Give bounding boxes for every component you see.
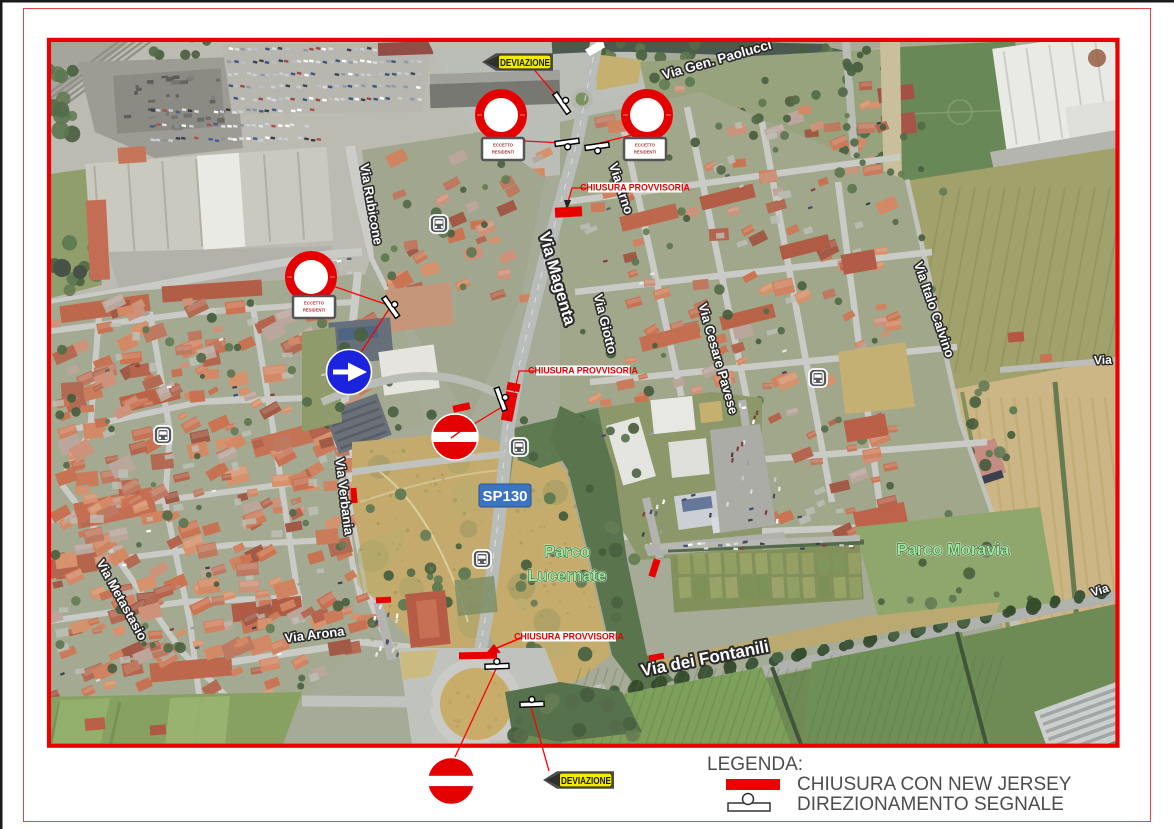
svg-text:Lucernate: Lucernate: [528, 567, 607, 585]
svg-text:RESIDENTI: RESIDENTI: [492, 150, 514, 155]
svg-text:DEVIAZIONE: DEVIAZIONE: [500, 57, 550, 69]
svg-text:SP130: SP130: [482, 488, 527, 505]
svg-text:Parco: Parco: [544, 543, 590, 561]
svg-text:ECCETTO: ECCETTO: [304, 301, 325, 306]
svg-text:CHIUSURA PROVVISORIA: CHIUSURA PROVVISORIA: [580, 183, 690, 193]
svg-text:CHIUSURA PROVVISORIA: CHIUSURA PROVVISORIA: [528, 366, 638, 376]
svg-text:DEVIAZIONE: DEVIAZIONE: [561, 775, 611, 787]
svg-text:LEGENDA:: LEGENDA:: [707, 754, 803, 775]
svg-text:RESIDENTI: RESIDENTI: [634, 150, 656, 155]
svg-text:RESIDENTI: RESIDENTI: [303, 308, 325, 313]
svg-text:ECCETTO: ECCETTO: [493, 143, 514, 148]
svg-text:DIREZIONAMENTO SEGNALE: DIREZIONAMENTO SEGNALE: [797, 794, 1064, 815]
svg-text:ECCETTO: ECCETTO: [635, 143, 656, 148]
svg-text:Parco Moravia: Parco Moravia: [897, 541, 1011, 559]
svg-text:CHIUSURA CON NEW JERSEY: CHIUSURA CON NEW JERSEY: [797, 774, 1072, 795]
svg-text:CHIUSURA PROVVISORIA: CHIUSURA PROVVISORIA: [514, 632, 624, 642]
svg-text:Via: Via: [1094, 353, 1113, 368]
